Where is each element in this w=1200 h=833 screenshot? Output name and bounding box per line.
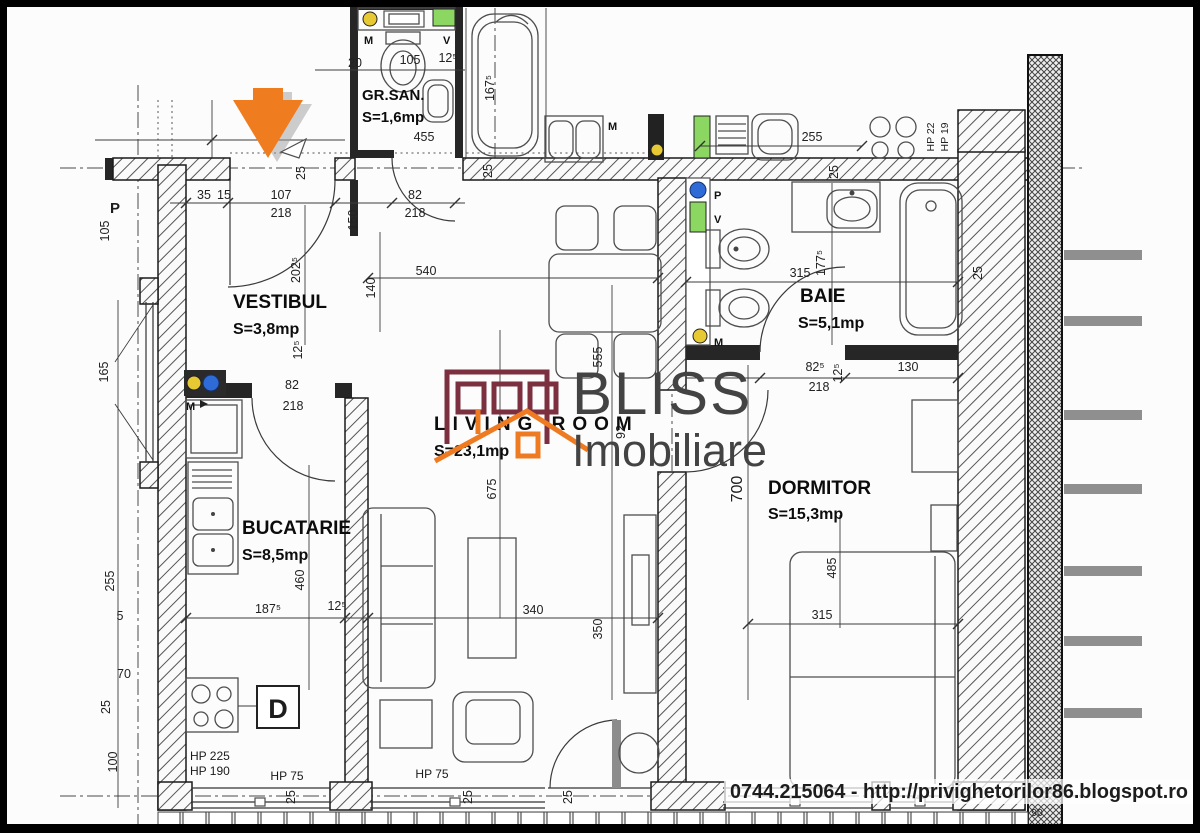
dim: 218 — [271, 206, 292, 220]
room-name-vestibul: VESTIBUL — [233, 292, 327, 313]
meter-dot — [693, 329, 707, 343]
grsan-wall-right — [455, 2, 463, 158]
dim: 455 — [414, 130, 435, 144]
brand-name-2: Imobiliare — [572, 425, 767, 476]
room-name-baie: BAIE — [800, 286, 845, 307]
dim: 255 — [103, 571, 117, 592]
wall-left-exterior — [158, 165, 186, 810]
dim: 255 — [802, 130, 823, 144]
dim: 675 — [485, 479, 499, 500]
dim: 218 — [283, 399, 304, 413]
marker-m: M — [714, 337, 723, 349]
floor-plan-image: 35 15 107 218 82 218 25 150 20 105 12⁵ 4… — [0, 0, 1200, 833]
dim: 315 — [790, 266, 811, 280]
wall-top-stub — [335, 158, 355, 180]
marker-v: V — [443, 35, 451, 47]
wall-right — [958, 150, 1025, 810]
dim: 25 — [481, 164, 495, 178]
dim: 315 — [812, 608, 833, 622]
dim: 105 — [400, 53, 421, 67]
meter-dot — [651, 144, 663, 156]
vent-marker — [690, 202, 706, 232]
stove-zone-label: D — [268, 694, 288, 724]
dim: 15 — [217, 188, 231, 202]
living-dormitor-wall-upper — [658, 178, 686, 390]
room-area-bucatarie: S=8,5mp — [242, 547, 308, 564]
dim: 187⁵ — [255, 602, 281, 616]
dim: 167⁵ — [483, 75, 497, 101]
party-wall — [1028, 55, 1062, 833]
dim: 460 — [293, 570, 307, 591]
dim: 218 — [405, 206, 426, 220]
dim: 105 — [98, 221, 112, 242]
dim: 82⁵ — [805, 360, 824, 374]
room-area-vestibul: S=3,8mp — [233, 321, 299, 338]
bottom-pier-1 — [158, 782, 192, 810]
meter-dot — [363, 12, 377, 26]
contact-banner: 0744.215064 - http://privighetorilor86.b… — [724, 779, 1194, 804]
dim: 25 — [284, 790, 298, 804]
dim: 20 — [348, 56, 362, 70]
room-name-bucatarie: BUCATARIE — [242, 518, 351, 539]
dim: 485 — [825, 558, 839, 579]
right-top-wall-block — [958, 110, 1025, 152]
dim: 202⁵ — [289, 257, 303, 283]
wall-top-right — [463, 158, 1028, 180]
hp-label: HP 75 — [270, 769, 303, 783]
dim: 12⁵ — [438, 51, 457, 65]
dim: 150 — [346, 210, 360, 231]
dim: 100 — [106, 752, 120, 773]
dim: 140 — [364, 278, 378, 299]
vent-marker — [433, 9, 455, 26]
left-window-pier-top — [140, 278, 158, 304]
floor-plan-drawing: 35 15 107 218 82 218 25 150 20 105 12⁵ 4… — [0, 0, 1200, 833]
dim: 25 — [971, 266, 985, 280]
dim: 35 — [197, 188, 211, 202]
dim: 350 — [591, 619, 605, 640]
vent-marker — [694, 116, 710, 158]
room-name-grsan: GR.SAN. — [362, 87, 425, 104]
living-dormitor-wall-lower — [658, 472, 686, 788]
dim: 165 — [97, 362, 111, 383]
room-area-baie: S=5,1mp — [798, 315, 864, 332]
room-area-dormitor: S=15,3mp — [768, 506, 843, 523]
dim: 70 — [117, 667, 131, 681]
meter-dot — [187, 376, 201, 390]
dim: 12⁵ — [831, 363, 845, 382]
dim: 82 — [285, 378, 299, 392]
dim: 5 — [117, 609, 124, 623]
marker-m: M — [186, 401, 195, 413]
marker-m: M — [364, 35, 373, 47]
hp-label: HP 75 — [415, 767, 448, 781]
dim: 340 — [523, 603, 544, 617]
dim: 12⁵ — [327, 599, 346, 613]
marker-m: M — [608, 121, 617, 133]
room-area-grsan: S=1,6mp — [362, 109, 424, 126]
grsan-wall-left — [350, 2, 358, 158]
grsan-wall-bottom — [350, 150, 394, 158]
dim: 107 — [271, 188, 292, 202]
dim: 90 — [1031, 807, 1043, 819]
kitchen-wall-b — [335, 383, 352, 398]
dim: 540 — [416, 264, 437, 278]
dim: 25 — [294, 166, 308, 180]
marker-p: P — [110, 200, 120, 217]
dim: 25 — [561, 790, 575, 804]
baie-dormitor-wall-b — [845, 345, 958, 360]
kitchen-living-wall — [345, 398, 368, 788]
hp-label: HP 22 — [925, 122, 937, 151]
marker-v: V — [714, 214, 722, 226]
dim: 25 — [827, 165, 841, 179]
bottom-pier-2 — [330, 782, 372, 810]
dim: 218 — [809, 380, 830, 394]
pipe-dot — [203, 375, 219, 391]
dim: 12⁵ — [291, 340, 305, 359]
brand-name: BLISS — [572, 360, 752, 427]
hp-label: HP 190 — [190, 764, 230, 778]
dim: 700 — [729, 476, 746, 503]
bottom-pier-3 — [651, 782, 725, 810]
dim: 177⁵ — [814, 250, 828, 276]
hp-label: HP 19 — [939, 122, 951, 151]
dim: 25 — [99, 700, 113, 714]
dim: 25 — [461, 790, 475, 804]
dim: 130 — [898, 360, 919, 374]
marker-p: P — [714, 190, 721, 202]
contact-text: 0744.215064 - http://privighetorilor86.b… — [730, 781, 1188, 803]
dim: 82 — [408, 188, 422, 202]
pipe-dot — [690, 182, 706, 198]
room-name-dormitor: DORMITOR — [768, 478, 871, 499]
left-window-pier-bottom — [140, 462, 158, 488]
balcony-paver-strip — [158, 812, 1028, 826]
hp-label: HP 225 — [190, 749, 230, 763]
